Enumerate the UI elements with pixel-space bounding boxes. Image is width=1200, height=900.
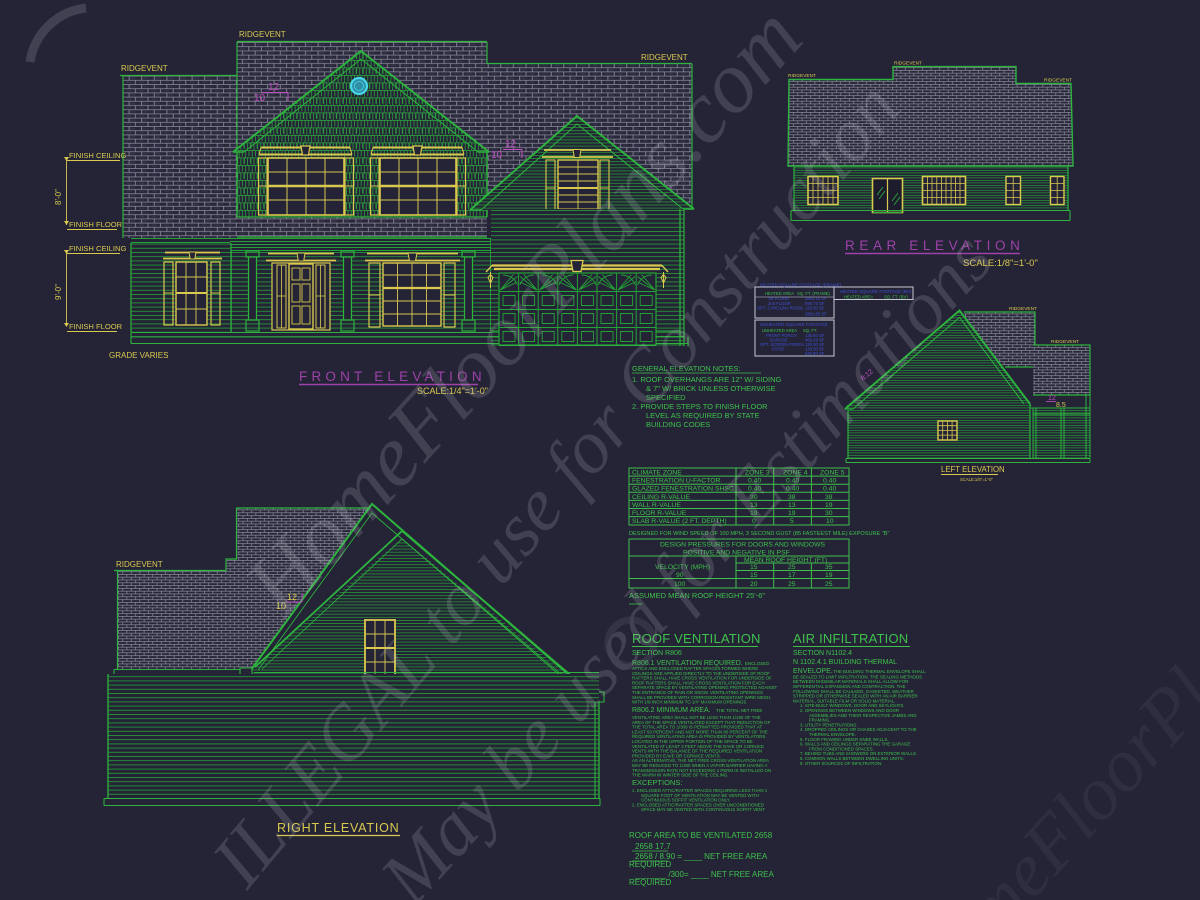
svg-text:9'-0": 9'-0" [54,284,63,300]
svg-text:WALL R-VALUE: WALL R-VALUE [632,502,681,509]
svg-text:REQUIRED: REQUIRED [629,878,671,887]
svg-text:RIDGEVENT: RIDGEVENT [1044,78,1072,84]
svg-text:THE BUILDING THERMAL ENVELOPE: THE BUILDING THERMAL ENVELOPE SHALL [833,669,926,674]
svg-text:25: 25 [788,564,796,571]
svg-text:LEFT ELEVATION: LEFT ELEVATION [941,465,1005,474]
svg-text:17: 17 [788,572,796,579]
svg-text:OPT. CAROLINA ROOM: OPT. CAROLINA ROOM [757,306,803,311]
svg-text:THE TOTAL NET FREE: THE TOTAL NET FREE [716,708,762,713]
svg-text:FINISH CEILING: FINISH CEILING [69,151,126,160]
svg-text:2861.85 SF: 2861.85 SF [805,312,827,317]
svg-text:RIDGEVENT: RIDGEVENT [116,560,163,569]
svg-text:R806.2 MINIMUM AREA.: R806.2 MINIMUM AREA. [632,707,711,714]
svg-text:WITH 1/8 INCH MINIMUM TO 1/4": WITH 1/8 INCH MINIMUM TO 1/4" MAXIMUM OP… [632,700,746,705]
svg-text:30: 30 [825,510,833,517]
svg-text:10: 10 [826,518,834,525]
svg-text:CLIMATE ZONE: CLIMATE ZONE [632,470,682,477]
svg-text:0.40: 0.40 [823,478,836,485]
svg-text:19: 19 [825,572,833,579]
svg-text:RIDGEVENT: RIDGEVENT [1051,339,1079,345]
svg-text:PATIO: PATIO [772,347,785,352]
svg-text:12: 12 [1048,395,1056,402]
svg-text:5: 5 [790,518,794,525]
svg-text:SECTION N1102.4: SECTION N1102.4 [793,650,852,657]
svg-text:20: 20 [750,581,758,588]
svg-text:25: 25 [825,581,833,588]
svg-text:12: 12 [505,139,517,150]
svg-text:9. OTHER SOURCES OF INFILTR: 9. OTHER SOURCES OF INFILTRATION. [800,761,882,766]
svg-text:GRADE VARIES: GRADE VARIES [109,351,168,360]
svg-text:THE WARM IN WINTER SIDE OF THE: THE WARM IN WINTER SIDE OF THE CEILING. [632,773,729,778]
svg-text:25: 25 [788,581,796,588]
svg-text:15: 15 [750,572,758,579]
svg-text:RIDGEVENT: RIDGEVENT [239,30,286,39]
svg-text:15: 15 [750,564,758,571]
svg-text:SCALE:1/8"=1'-0": SCALE:1/8"=1'-0" [960,477,994,482]
svg-text:10: 10 [491,150,503,161]
svg-text:10: 10 [254,93,266,104]
svg-text:MEAN ROOF HEIGHT (FT): MEAN ROOF HEIGHT (FT) [744,557,827,564]
svg-text:2658 17.7: 2658 17.7 [635,842,671,851]
svg-text:35: 35 [825,564,833,571]
svg-text:8'-0": 8'-0" [54,189,63,205]
svg-text:HEATED AREA: HEATED AREA [844,295,873,300]
svg-text:REQUIRED: REQUIRED [629,860,671,869]
svg-text:RIDGEVENT: RIDGEVENT [1009,306,1037,312]
svg-text:UNHEATED SQUARE FOOTAGE: UNHEATED SQUARE FOOTAGE [760,322,828,327]
svg-text:38: 38 [825,494,833,501]
svg-text:CEILING R-VALUE: CEILING R-VALUE [632,494,691,501]
svg-text:RIDGEVENT: RIDGEVENT [894,61,922,67]
svg-text:0.40: 0.40 [823,486,836,493]
svg-text:RIDGEVENT: RIDGEVENT [641,53,688,62]
svg-text:ROOF AREA TO BE VENTILATED 26: ROOF AREA TO BE VENTILATED 2658 [629,831,773,840]
svg-text:FINISH FLOOR: FINISH FLOOR [69,322,123,331]
svg-text:FINISH FLOOR: FINISH FLOOR [69,220,123,229]
svg-text:N 1102.4.1 BUILDING THERMAL: N 1102.4.1 BUILDING THERMAL [793,659,897,666]
svg-text:SPACE MAY BE VENTED WITH CONTI: SPACE MAY BE VENTED WITH CONTINUOUS SOFF… [641,807,765,812]
svg-text:AIR INFILTRATION: AIR INFILTRATION [793,631,908,646]
svg-text:120.00 SF: 120.00 SF [805,306,825,311]
svg-text:EXCEPTIONS:: EXCEPTIONS: [632,778,682,787]
svg-text:RIDGEVENT: RIDGEVENT [121,64,168,73]
svg-text:19: 19 [825,502,833,509]
svg-text:FINISH CEILING: FINISH CEILING [69,244,126,253]
svg-text:8.5: 8.5 [1056,402,1066,409]
svg-text:12: 12 [268,82,280,93]
